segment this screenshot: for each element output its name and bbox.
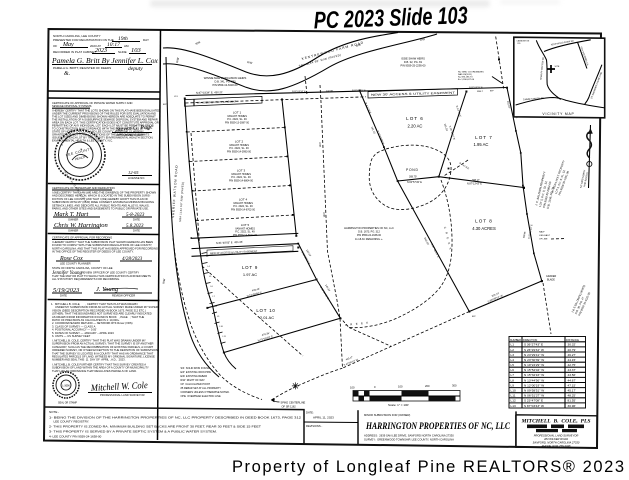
svg-text:HALF: HALF xyxy=(539,231,545,234)
svg-text:PAMELA G. BRITT, REGISTER OF D: PAMELA G. BRITT, REGISTER OF DEEDS xyxy=(53,66,111,70)
svg-text:LOT 3: LOT 3 xyxy=(237,169,246,173)
svg-text:L9: L9 xyxy=(511,383,515,387)
svg-text:1.97 AC: 1.97 AC xyxy=(243,272,257,277)
svg-text:308.79': 308.79' xyxy=(409,176,417,179)
svg-text:AM: AM xyxy=(124,44,129,48)
svg-text:DATE: DATE xyxy=(133,218,140,222)
svg-text:#5 REBAR SET AT ALL PROPERTY: #5 REBAR SET AT ALL PROPERTY xyxy=(181,387,222,390)
svg-text:R/W RIGHT OF WAY: R/W RIGHT OF WAY xyxy=(181,379,206,382)
svg-text:PC 2023 Slide 103: PC 2023 Slide 103 xyxy=(313,2,468,34)
svg-text:L13: L13 xyxy=(511,404,516,408)
svg-text:47.15': 47.15' xyxy=(568,383,577,387)
svg-text:EIP: EIP xyxy=(490,91,494,93)
svg-text:368.17': 368.17' xyxy=(472,179,480,182)
svg-text:N 23°30'39" W: N 23°30'39" W xyxy=(524,358,544,362)
svg-text:ISSIE SHAW HEIRS: ISSIE SHAW HEIRS xyxy=(401,57,425,61)
svg-text:SLIDE: SLIDE xyxy=(118,50,127,54)
svg-text:CORNERS UNLESS OTHERWISE NOTED: CORNERS UNLESS OTHERWISE NOTED. xyxy=(181,391,230,394)
svg-text:2.20 AC: 2.20 AC xyxy=(408,124,423,129)
svg-text:200: 200 xyxy=(425,384,430,388)
svg-text:N 87°03'15" E: N 87°03'15" E xyxy=(469,87,483,89)
svg-text:81.55': 81.55' xyxy=(568,399,577,403)
svg-text:S 87°03'43" W: S 87°03'43" W xyxy=(524,404,544,408)
svg-text:43.56': 43.56' xyxy=(568,373,577,377)
svg-text:L7: L7 xyxy=(511,373,515,377)
svg-text:L1: L1 xyxy=(511,343,515,347)
svg-text:1.95 AC: 1.95 AC xyxy=(474,142,489,147)
svg-text:30.32': 30.32' xyxy=(568,343,577,347)
svg-text:Property of Longleaf Pine REAL: Property of Longleaf Pine REALTORS® 2023 xyxy=(232,458,624,476)
svg-text:DATE: DATE xyxy=(60,294,67,298)
svg-text:N 15°52'04" W: N 15°52'04" W xyxy=(524,368,544,372)
svg-text:OHE OVERHEAD ELECTRIC LINE: OHE OVERHEAD ELECTRIC LINE xyxy=(181,395,221,398)
svg-text:DAY: DAY xyxy=(143,38,149,42)
svg-text:LOT 5: LOT 5 xyxy=(241,223,250,227)
svg-text:EIP: EIP xyxy=(472,316,476,318)
svg-text:S 26°29'34" W: S 26°29'34" W xyxy=(524,348,544,352)
svg-text:L8: L8 xyxy=(511,378,515,382)
svg-text:REVIEW OFFICER: REVIEW OFFICER xyxy=(112,294,135,298)
svg-text:PIN 9559-14-6804-00: PIN 9559-14-6804-00 xyxy=(229,179,254,182)
svg-text:DIRECTION: DIRECTION xyxy=(523,338,537,342)
svg-text:LEE COUNTY REGISTRY.: LEE COUNTY REGISTRY. xyxy=(54,420,90,424)
svg-text:DISTANCE: DISTANCE xyxy=(566,338,579,342)
svg-text:RECORDED IN PLAT CABINET: RECORDED IN PLAT CABINET xyxy=(53,50,96,54)
svg-text:SANFORD, NORTH CAROLINA 27330: SANFORD, NORTH CAROLINA 27330 xyxy=(533,440,580,444)
svg-text:PIN 9559-25-2295-00: PIN 9559-25-2295-00 xyxy=(401,64,427,68)
svg-text:D.B. 341, PG. 580: D.B. 341, PG. 580 xyxy=(214,80,236,84)
svg-text:L3: L3 xyxy=(511,353,515,357)
svg-text:LOT 9: LOT 9 xyxy=(242,265,258,270)
svg-text:WELT: WELT xyxy=(477,91,484,93)
svg-text:483 WILKER ROAD: 483 WILKER ROAD xyxy=(544,437,568,441)
svg-text:HARRINGTON PROPERTIES OF NC, L: HARRINGTON PROPERTIES OF NC, LLC xyxy=(365,421,510,432)
svg-text:43.37': 43.37' xyxy=(568,368,577,372)
svg-text:OHE: OHE xyxy=(322,212,325,218)
svg-text:LICENSE NO.: LICENSE NO. xyxy=(128,176,145,180)
svg-text:PIN 9559-13-6318-00: PIN 9559-13-6318-00 xyxy=(213,83,239,87)
svg-text:103: 103 xyxy=(131,47,142,54)
svg-text:POND: POND xyxy=(406,168,419,172)
svg-text:EIR EXISTING REBAR: EIR EXISTING REBAR xyxy=(181,375,208,378)
svg-text:N 06°51'37" W: N 06°51'37" W xyxy=(524,394,544,398)
svg-text:SITE: SITE xyxy=(555,66,560,68)
svg-text:PROFESSIONAL LAND SURVEYOR: PROFESSIONAL LAND SURVEYOR xyxy=(534,434,579,438)
svg-text:100: 100 xyxy=(398,385,403,389)
svg-text:PIN 9559-14-6702-00: PIN 9559-14-6702-00 xyxy=(231,208,256,211)
svg-text:LIES EAST: LIES EAST xyxy=(539,234,551,237)
svg-text:147.98': 147.98' xyxy=(326,91,334,93)
svg-text:OF LINE: OF LINE xyxy=(539,239,548,241)
svg-text:L12: L12 xyxy=(511,399,516,403)
svg-text:LOT 10: LOT 10 xyxy=(256,308,275,313)
svg-text:48.25': 48.25' xyxy=(568,394,577,398)
svg-text:46.27': 46.27' xyxy=(568,353,577,357)
svg-text:LOT 8: LOT 8 xyxy=(475,219,493,224)
svg-text:2- THIS PROPERTY IS ZONED RA.: 2- THIS PROPERTY IS ZONED RA. MINIMUM BU… xyxy=(49,425,261,429)
svg-text:D.B. 1673, PG. 312: D.B. 1673, PG. 312 xyxy=(358,231,380,234)
svg-text:L2: L2 xyxy=(511,348,515,352)
svg-text:4.30 ACRES: 4.30 ACRES xyxy=(472,226,496,231)
svg-text:CP CALCULATED POINT: CP CALCULATED POINT xyxy=(181,383,211,386)
svg-text:MINOR SUBDIVISION FOR (OWNER): MINOR SUBDIVISION FOR (OWNER) xyxy=(364,413,410,417)
svg-text:DATE:: DATE: xyxy=(306,411,314,415)
svg-text:N 87°03'34" E 450.21': N 87°03'34" E 450.21' xyxy=(196,90,224,95)
svg-text:LOT 6: LOT 6 xyxy=(406,116,424,121)
svg-text:12-05: 12-05 xyxy=(128,170,139,175)
svg-text:DATE: DATE xyxy=(133,229,140,233)
svg-text:LOT 1: LOT 1 xyxy=(233,111,242,115)
svg-text:L6: L6 xyxy=(511,368,515,372)
svg-text:LOT 4: LOT 4 xyxy=(239,198,248,202)
svg-text:APRIL 11, 2023: APRIL 11, 2023 xyxy=(313,416,334,420)
svg-text:LOT 2: LOT 2 xyxy=(235,140,244,144)
svg-text:20.79': 20.79' xyxy=(568,348,577,352)
svg-text:ALL STATUTORY REQUIREMENTS FOR: ALL STATUTORY REQUIREMENTS FOR RECORDING… xyxy=(52,277,120,281)
svg-text:D.B. 32, PG. 81: D.B. 32, PG. 81 xyxy=(404,60,423,64)
svg-text:OWNER: OWNER xyxy=(68,218,78,222)
svg-text:44.15': 44.15' xyxy=(568,358,577,362)
svg-text:EIP EXISTING IRON PIPE: EIP EXISTING IRON PIPE xyxy=(181,371,212,374)
svg-text:1.: 1. xyxy=(51,302,53,306)
svg-text:THAT HAS AN ORDINANCE THAT REG: THAT HAS AN ORDINANCE THAT REGULATES PAR… xyxy=(52,369,137,373)
svg-text:BLADE: BLADE xyxy=(547,279,555,282)
svg-text:NUMBER AND SEAL THIS 11 DAY: NUMBER AND SEAL THIS 11 DAY OF APRIL , A… xyxy=(52,358,126,362)
svg-text:Pamela G. Britt By Jennifer L.: Pamela G. Britt By Jennifer L. Cox xyxy=(51,56,158,65)
svg-text:44.67': 44.67' xyxy=(568,378,577,382)
svg-text:SEWAGE DISPOSAL SYSTEMS: SEWAGE DISPOSAL SYSTEMS xyxy=(52,104,92,108)
svg-text:L10: L10 xyxy=(511,389,516,393)
svg-text:N 19°24'29" W: N 19°24'29" W xyxy=(524,363,544,367)
svg-text:30.96': 30.96' xyxy=(568,404,577,408)
svg-text:L4: L4 xyxy=(511,358,515,362)
svg-text:MITCHELL B. COLE, PLS: MITCHELL B. COLE, PLS xyxy=(521,419,591,425)
svg-text:Scale: 1" = 100': Scale: 1" = 100' xyxy=(388,403,409,407)
svg-text:PIN 9559-13-3087-00: PIN 9559-13-3087-00 xyxy=(225,121,250,124)
svg-text:N 12°00'19" W: N 12°00'19" W xyxy=(524,383,544,387)
svg-text:deputy: deputy xyxy=(128,66,143,72)
svg-text:SEAL OR STAMP: SEAL OR STAMP xyxy=(58,402,77,405)
svg-text:4- LEE COUNTY PIN 9559-24-1638: 4- LEE COUNTY PIN 9559-24-1638-00 xyxy=(49,435,102,439)
svg-text:100: 100 xyxy=(350,386,355,390)
svg-text:IN THE OFFICE OF THE REGISTER: IN THE OFFICE OF THE REGISTER OF DEEDS O… xyxy=(52,250,134,254)
svg-text:PHONE (919) 258-3348: PHONE (919) 258-3348 xyxy=(542,444,571,448)
svg-text:VICINITY MAP: VICINITY MAP xyxy=(542,112,574,116)
svg-text:, REVIEW OFFICER OF LEE COUNTY: , REVIEW OFFICER OF LEE COUNTY CERTIFY xyxy=(80,271,139,275)
svg-text:OF SR 1162: OF SR 1162 xyxy=(282,404,297,408)
svg-text:PIN 9559-24-1638-00: PIN 9559-24-1638-00 xyxy=(357,234,382,237)
svg-text:LOT 7: LOT 7 xyxy=(475,135,493,140)
svg-text:OF: OF xyxy=(53,44,57,48)
svg-text:N 13°44'56" W: N 13°44'56" W xyxy=(524,378,544,382)
svg-text:N 15°32'16" W: N 15°32'16" W xyxy=(524,373,544,377)
svg-text:PIN 9559-14-6622-00: PIN 9559-14-6622-00 xyxy=(233,234,258,237)
svg-text:SPIKE CENTERLINE: SPIKE CENTERLINE xyxy=(281,400,306,404)
svg-text:REVISIONS -: REVISIONS - xyxy=(306,424,322,428)
svg-text:NOTE -: NOTE - xyxy=(49,410,59,414)
svg-text:LEE COUNTY PLANNER: LEE COUNTY PLANNER xyxy=(60,262,91,266)
svg-text:SIF SOLID IRON FOUND: SIF SOLID IRON FOUND xyxy=(181,367,211,370)
svg-text:E= 1,930,627.66: E= 1,930,627.66 xyxy=(458,79,475,81)
svg-text:HARRINGTON PROPERTIES OF NC, L: HARRINGTON PROPERTIES OF NC, LLC xyxy=(344,226,394,230)
svg-text:PARKS, AND OTHER SITES AND EAS: PARKS, AND OTHER SITES AND EASEMENTS TO … xyxy=(52,207,149,211)
svg-text:11.18 AC REMAINING +-: 11.18 AC REMAINING +- xyxy=(355,238,383,241)
svg-text:2.01 AC: 2.01 AC xyxy=(260,315,274,320)
svg-text:N 87°03'34" E: N 87°03'34" E xyxy=(292,91,306,93)
svg-text:NUMBER: NUMBER xyxy=(510,338,521,342)
svg-text:CERTIFICATE OF APPROVAL FOR RE: CERTIFICATE OF APPROVAL FOR RECORDING xyxy=(52,236,112,240)
svg-text:PIN 9559-14-3993-00: PIN 9559-14-3993-00 xyxy=(227,150,252,153)
svg-text:SURVEY: GREENWOOD TOWNSHIP, L: SURVEY: GREENWOOD TOWNSHIP, LEE COUNTY, … xyxy=(364,438,454,442)
svg-text:N 09°58'51" W: N 09°58'51" W xyxy=(524,389,544,393)
svg-text:PROFESSIONAL LAND SURVEYOR: PROFESSIONAL LAND SURVEYOR xyxy=(100,393,145,397)
svg-text:&.: &. xyxy=(64,71,70,77)
svg-text:ADDRESS: 2639 SAN LEE DRIVE,: ADDRESS: 2639 SAN LEE DRIVE, SANFORD NOR… xyxy=(364,434,454,438)
svg-text:42.75': 42.75' xyxy=(568,363,577,367)
svg-text:N 87°13'43" E: N 87°13'43" E xyxy=(467,183,482,186)
svg-text:EIP: EIP xyxy=(163,104,167,106)
svg-text:CERTIFICATE OF OWNERSHIP AND D: CERTIFICATE OF OWNERSHIP AND DEDICATION xyxy=(52,186,115,190)
svg-text:6. UNITS — US SURVEY FEET: 6. UNITS — US SURVEY FEET xyxy=(52,334,91,338)
svg-text:OHE: OHE xyxy=(318,142,321,148)
svg-text:L-3096: L-3096 xyxy=(62,384,70,387)
svg-text:STATE OF NORTH CAROLINA, COUNT: STATE OF NORTH CAROLINA, COUNTY OF LEE xyxy=(52,266,113,270)
svg-text:S 36°27'43" E: S 36°27'43" E xyxy=(524,343,543,347)
svg-text:OWNER: OWNER xyxy=(68,229,78,233)
svg-text:R/W: R/W xyxy=(162,278,167,284)
svg-text:3- THIS PROPERTY IS SERVED BY: 3- THIS PROPERTY IS SERVED BY A PRIVATE … xyxy=(49,430,217,434)
svg-text:300: 300 xyxy=(452,384,457,388)
svg-text:N 84°57'49" E: N 84°57'49" E xyxy=(407,181,422,184)
svg-text:WINNIE MAE MURCHISON HEIRS: WINNIE MAE MURCHISON HEIRS xyxy=(204,76,247,80)
svg-text:AUTHORIZED AGENT: AUTHORIZED AGENT xyxy=(116,133,144,137)
svg-text:45.17': 45.17' xyxy=(568,389,577,393)
svg-text:L11: L11 xyxy=(511,394,516,398)
svg-text:L5: L5 xyxy=(511,363,515,367)
svg-text:S 23°47'08" E: S 23°47'08" E xyxy=(524,399,543,403)
svg-text:N 24°29'41" W: N 24°29'41" W xyxy=(524,353,544,357)
